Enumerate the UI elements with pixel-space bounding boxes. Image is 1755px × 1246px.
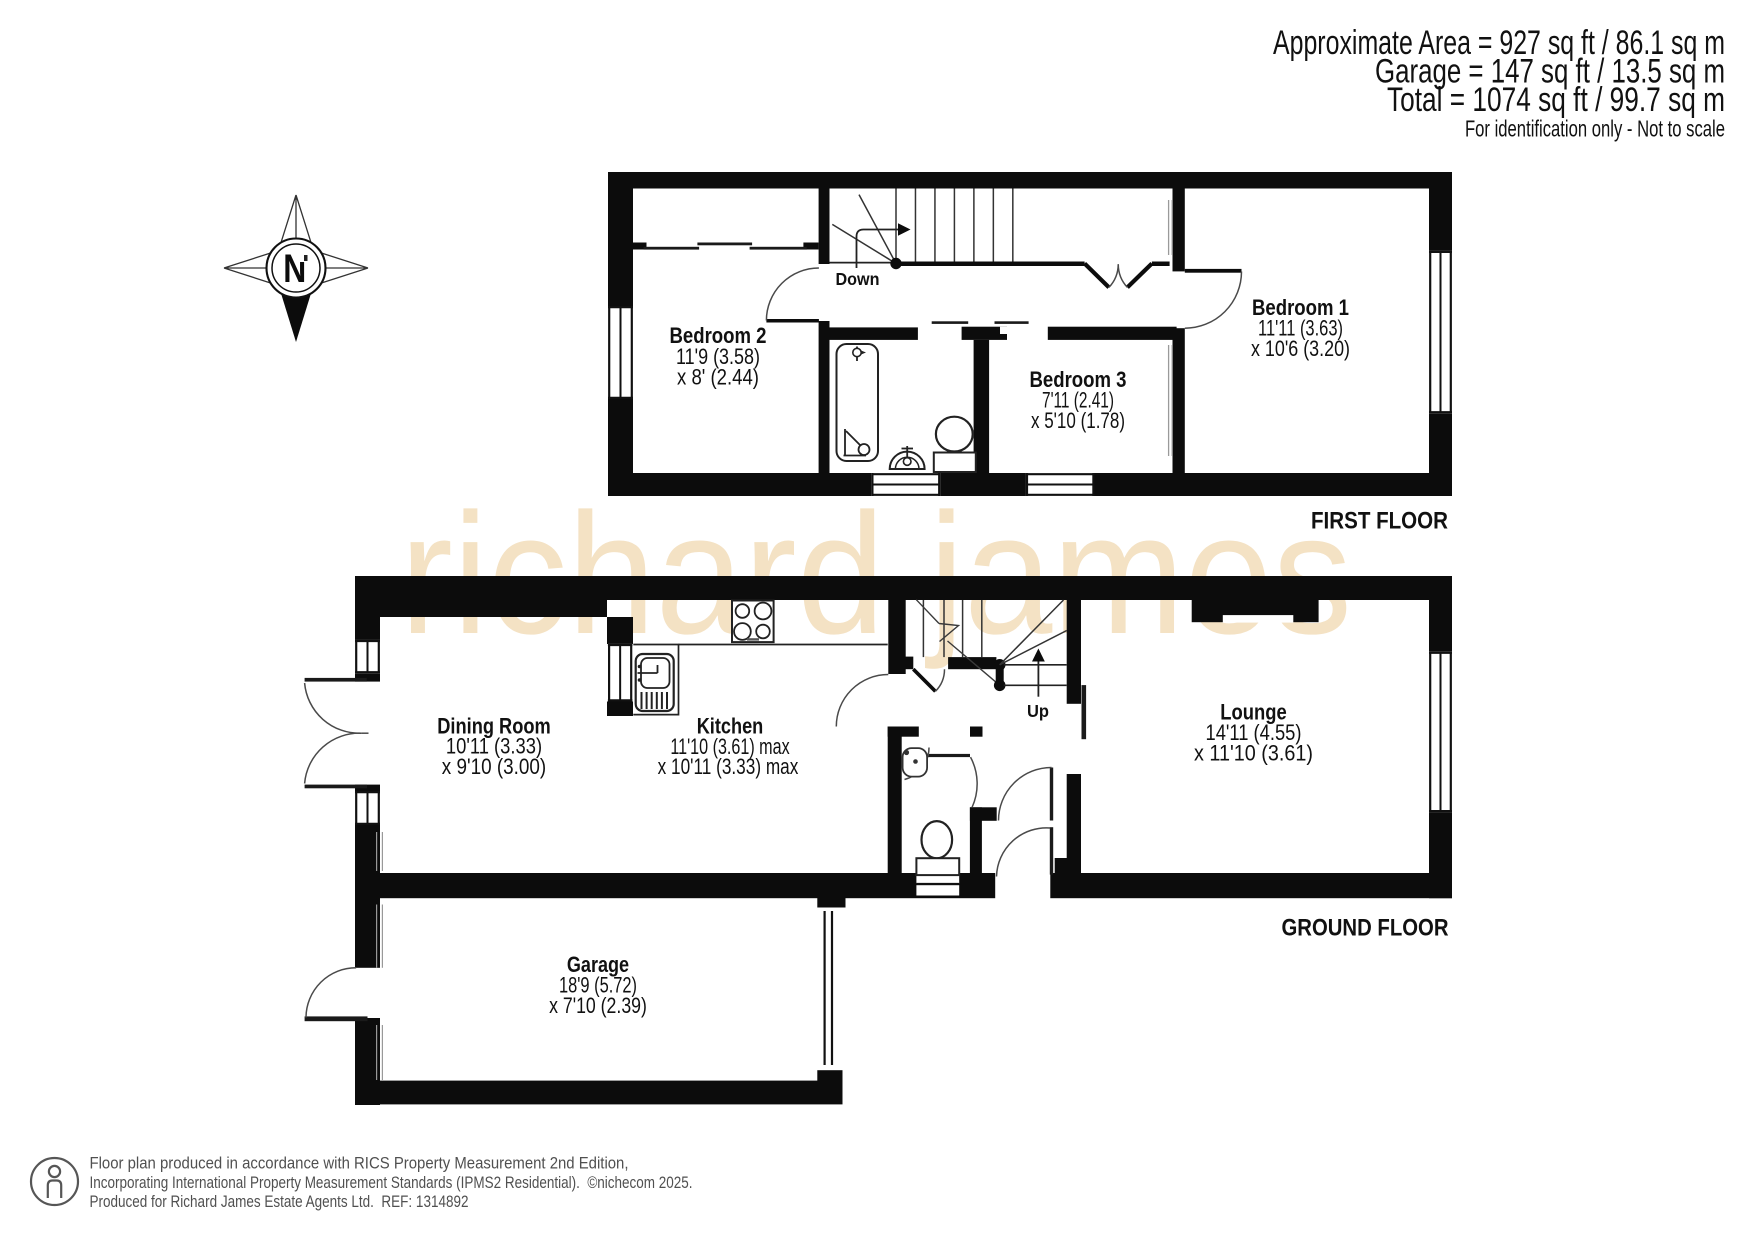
svg-text:richard james: richard james bbox=[400, 478, 1352, 670]
svg-text:x 8' (2.44): x 8' (2.44) bbox=[677, 365, 759, 390]
svg-text:x 11'10 (3.61): x 11'10 (3.61) bbox=[1194, 741, 1313, 766]
svg-text:For identification only - Not: For identification only - Not to scale bbox=[1465, 116, 1725, 142]
svg-text:Total = 1074 sq ft / 99.7 sq m: Total = 1074 sq ft / 99.7 sq m bbox=[1387, 81, 1725, 119]
svg-text:x 10'11 (3.33) max: x 10'11 (3.33) max bbox=[658, 754, 799, 779]
svg-text:Down: Down bbox=[836, 269, 880, 289]
svg-text:x 7'10 (2.39): x 7'10 (2.39) bbox=[549, 993, 647, 1018]
svg-text:Produced for Richard James Est: Produced for Richard James Estate Agents… bbox=[90, 1192, 469, 1211]
svg-text:FIRST FLOOR: FIRST FLOOR bbox=[1311, 508, 1448, 535]
svg-text:GROUND FLOOR: GROUND FLOOR bbox=[1282, 915, 1449, 942]
svg-text:Floor plan produced in accorda: Floor plan produced in accordance with R… bbox=[90, 1154, 629, 1173]
svg-text:Up: Up bbox=[1027, 701, 1049, 721]
svg-text:Incorporating International Pr: Incorporating International Property Mea… bbox=[90, 1173, 693, 1192]
svg-text:x 5'10 (1.78): x 5'10 (1.78) bbox=[1031, 408, 1125, 433]
svg-text:x 10'6 (3.20): x 10'6 (3.20) bbox=[1251, 336, 1350, 361]
svg-text:x 9'10 (3.00): x 9'10 (3.00) bbox=[442, 754, 546, 779]
